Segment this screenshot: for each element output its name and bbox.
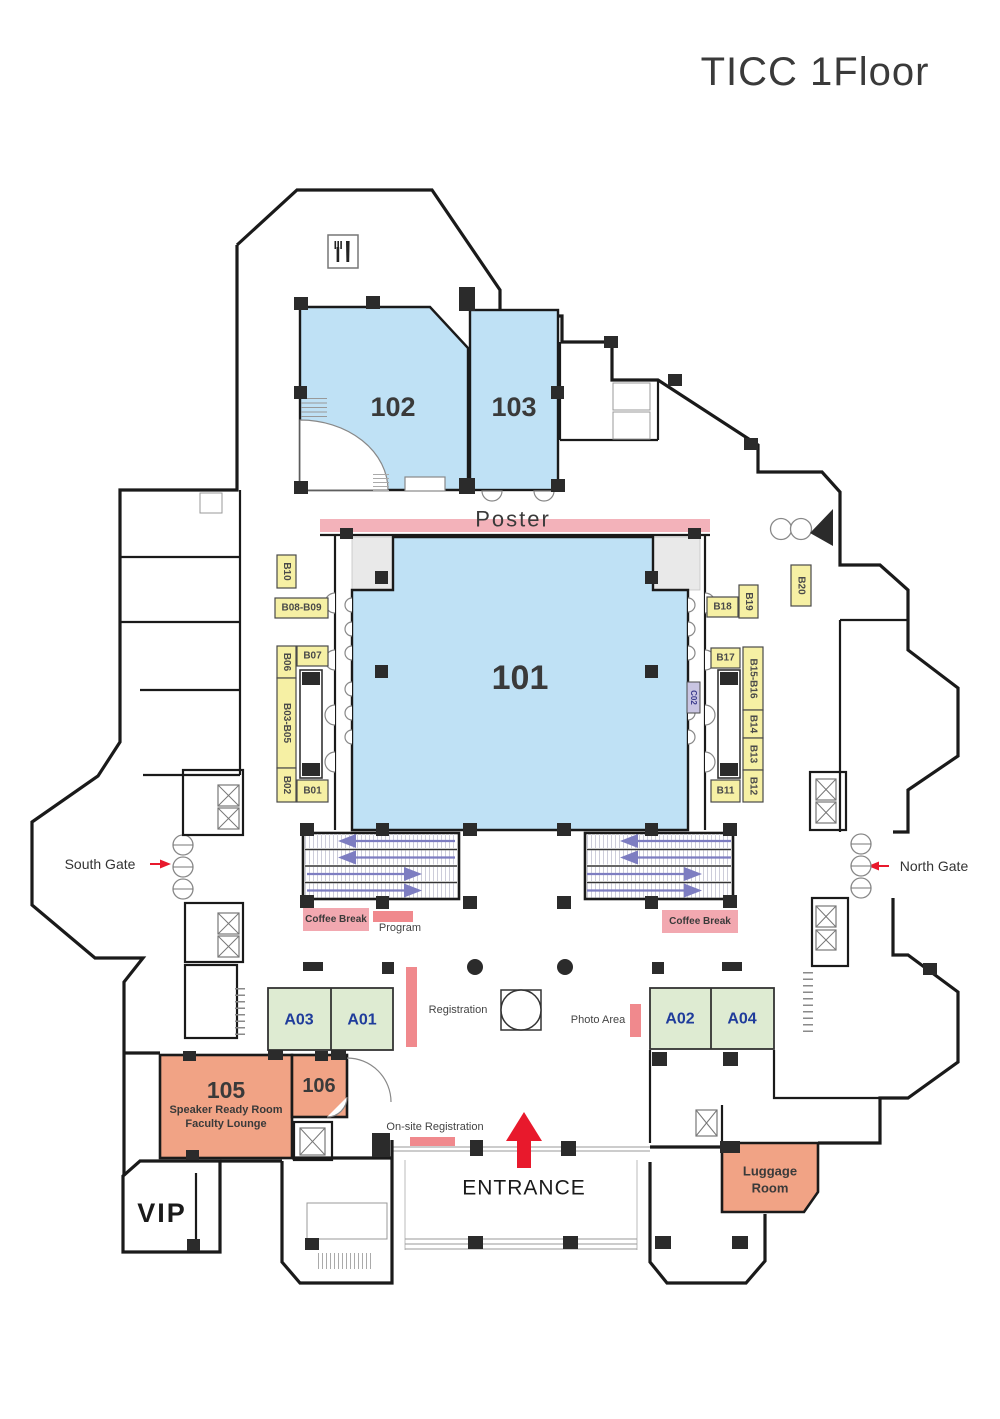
floor-plan-page: TICC 1Floor 102 103 Poster 101: [0, 0, 1000, 1414]
column-post: [463, 823, 477, 836]
column-post: [315, 1051, 328, 1061]
north-gate-label: North Gate: [900, 858, 969, 874]
column-post: [720, 1141, 740, 1153]
a-room-block-left: A03 A01: [268, 988, 393, 1050]
booth-b06-label: B06: [281, 653, 292, 672]
left-cluster-walls: [120, 490, 240, 775]
room-106-label: 106: [302, 1075, 335, 1097]
corridor-door-arc-106: [347, 1058, 391, 1102]
luggage-room-label2: Room: [752, 1181, 789, 1196]
column-post: [604, 336, 618, 348]
column-post: [294, 386, 307, 399]
photo-area-bar: [630, 1004, 641, 1037]
booth-b08-09-label: B08-B09: [281, 603, 321, 614]
topright-elevator-shaft: [613, 383, 650, 410]
column-post: [463, 896, 477, 909]
room-105-subtitle2: Faculty Lounge: [185, 1118, 266, 1130]
column-post: [303, 962, 323, 971]
booth-b07-label: B07: [303, 651, 322, 662]
column-post: [723, 895, 737, 908]
column-post: [668, 374, 682, 386]
center-column-feature: [501, 990, 541, 1030]
booth-b17-label: B17: [716, 653, 735, 664]
column-post: [551, 386, 564, 399]
room-103-door-arc: [534, 491, 554, 501]
south-gate-revolving-doors: [173, 835, 193, 899]
column-post: [382, 962, 394, 974]
luggage-room-label1: Luggage: [743, 1164, 797, 1179]
luggage-room: Luggage Room: [722, 1143, 818, 1212]
column-post: [268, 1050, 283, 1060]
south-gate-label: South Gate: [65, 856, 136, 872]
onsite-registration-bar: [410, 1137, 455, 1146]
entrance-label: ENTRANCE: [462, 1177, 586, 1200]
room-a01-label: A01: [347, 1012, 376, 1029]
column-post: [376, 896, 389, 909]
coffee-break-right-label: Coffee Break: [669, 916, 731, 927]
booth-b18-label: B18: [713, 602, 732, 613]
room-101-label: 101: [492, 659, 549, 697]
ne-revolving-door: [771, 519, 792, 540]
room-vip-label: VIP: [137, 1198, 187, 1228]
column-post: [723, 823, 737, 836]
column-post: [688, 528, 701, 539]
column-post: [459, 478, 475, 494]
room-106: 106: [292, 1055, 347, 1117]
elevator-bank-southwest-lower: [185, 903, 243, 1038]
room-102-label: 102: [370, 392, 415, 422]
column-post: [366, 296, 380, 309]
booth-b14-label: B14: [748, 715, 759, 734]
column-post: [376, 823, 389, 836]
corridor-door-arcs-left: [325, 593, 335, 772]
column-post: [459, 287, 475, 311]
corridor-door-arcs-right: [705, 593, 715, 772]
room-103-label: 103: [491, 392, 536, 422]
column-post: [723, 1052, 738, 1066]
room-vip: VIP: [123, 1161, 220, 1252]
ne-wing-walls: [840, 620, 908, 832]
floor-plan-canvas: TICC 1Floor 102 103 Poster 101: [0, 0, 1000, 1414]
column-post: [294, 481, 308, 494]
room-105: 105 Speaker Ready Room Faculty Lounge: [160, 1055, 292, 1158]
column-post: [331, 1050, 346, 1060]
column-post: [340, 528, 353, 539]
registration-label: Registration: [429, 1004, 488, 1016]
booth-b11-label: B11: [717, 786, 735, 797]
column-post: [645, 571, 658, 584]
booth-b19-label: B19: [743, 592, 754, 611]
column-post: [652, 1052, 667, 1066]
round-column: [557, 959, 573, 975]
column-post: [557, 896, 571, 909]
booth-b13-label: B13: [748, 745, 759, 764]
column-post: [300, 895, 314, 908]
exhibit-table-left: [300, 670, 322, 778]
column-post: [294, 297, 308, 310]
a-room-block-right: A02 A04: [650, 988, 774, 1049]
booth-b12-label: B12: [748, 777, 759, 796]
booth-b03-05-label: B03-B05: [281, 703, 292, 743]
right-lower-walls: [650, 1050, 880, 1143]
elevator-room-a04: [696, 1110, 717, 1136]
column-post: [186, 1150, 199, 1160]
elevator-room-106: [294, 1122, 332, 1160]
escalator-left: [303, 833, 459, 899]
column-post: [183, 1051, 196, 1061]
topright-room-walls: [560, 342, 658, 440]
photo-area-label: Photo Area: [571, 1014, 626, 1026]
ne-revolving-door: [791, 519, 812, 540]
room-102-door-recess: [405, 477, 445, 491]
column-post: [557, 823, 571, 836]
room-105-label: 105: [207, 1077, 246, 1103]
round-column: [467, 959, 483, 975]
porch-room-left: [282, 1140, 392, 1283]
room-105-subtitle1: Speaker Ready Room: [169, 1104, 282, 1116]
left-cluster-closet: [200, 493, 222, 513]
room-a03-label: A03: [284, 1012, 313, 1029]
room-103-door-arc: [482, 491, 502, 501]
entrance-steps: [405, 1160, 637, 1250]
ne-corner-post: [810, 509, 833, 546]
restaurant-icon: [328, 235, 358, 268]
column-post: [645, 665, 658, 678]
column-post: [551, 479, 565, 492]
booth-b15-16-label: B15-B16: [748, 658, 759, 698]
onsite-registration-label: On-site Registration: [386, 1121, 483, 1133]
room-a04-label: A04: [727, 1011, 756, 1028]
coffee-break-left-label: Coffee Break: [305, 914, 367, 925]
elevator-bank-southwest-upper: [183, 770, 243, 835]
registration-desk-bar: [406, 967, 417, 1047]
escalator-right: [585, 833, 733, 899]
booth-b02-label: B02: [281, 776, 292, 795]
booth-b10-label: B10: [281, 562, 292, 581]
booth-b20-label: B20: [796, 576, 807, 595]
column-post: [375, 665, 388, 678]
column-post: [300, 823, 314, 836]
booth-b01-label: B01: [303, 786, 322, 797]
south-gate-arrow-head: [160, 860, 171, 869]
north-gate-revolving-doors: [851, 834, 871, 898]
exhibit-table-right: [718, 670, 740, 778]
page-title: TICC 1Floor: [701, 50, 930, 94]
program-bar: [373, 911, 413, 922]
column-post: [645, 823, 658, 836]
column-post: [722, 962, 742, 971]
booth-c02-label: C02: [689, 690, 698, 705]
elevator-bank-northeast-lower: [812, 898, 848, 966]
column-post: [375, 571, 388, 584]
column-post: [652, 962, 664, 974]
column-post: [744, 438, 758, 450]
poster-label: Poster: [475, 507, 551, 532]
column-post: [645, 896, 658, 909]
entrance-arrow: [506, 1112, 542, 1168]
outer-wall-left: [32, 245, 237, 1176]
hall-101-gray-corner: [653, 537, 700, 590]
room-a02-label: A02: [665, 1011, 694, 1028]
column-post: [923, 963, 937, 975]
topright-elevator-shaft: [613, 412, 650, 439]
program-label: Program: [379, 922, 421, 934]
